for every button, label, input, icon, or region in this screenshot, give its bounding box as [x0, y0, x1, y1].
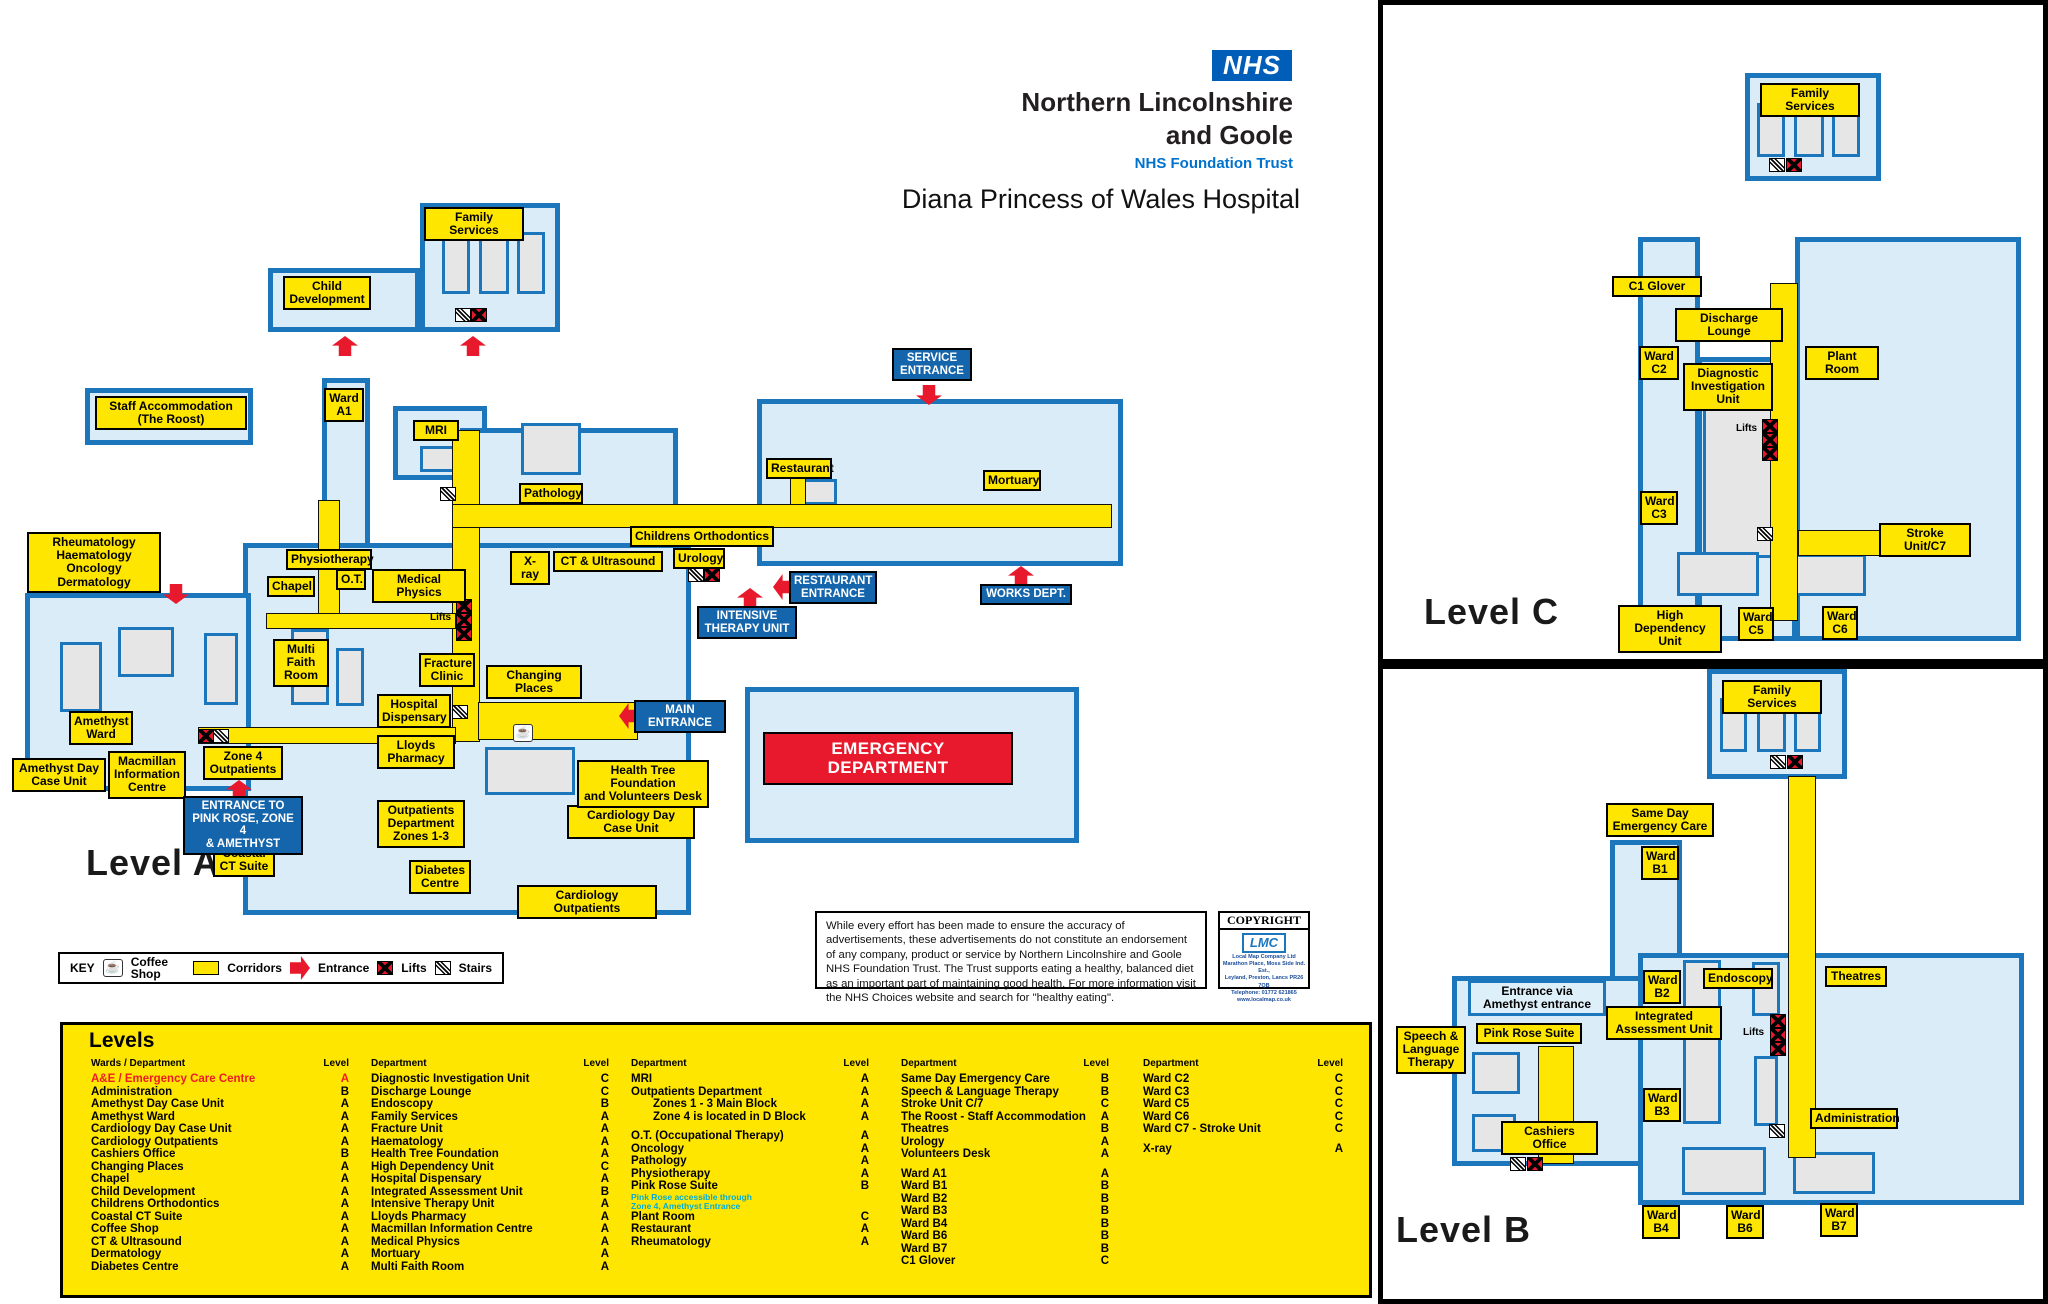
directory-row: C1 GloverC [901, 1255, 1109, 1268]
directory-row: Lloyds PharmacyA [371, 1211, 609, 1224]
map-label-level_c: Ward C6 [1822, 606, 1858, 640]
copyright-address1: Marathon Place, Moss Side Ind. Est., [1220, 961, 1308, 975]
map-label-level_a: Medical Physics [372, 569, 466, 603]
room [1793, 1152, 1875, 1194]
directory-row: CT & UltrasoundA [91, 1236, 349, 1249]
directory-column: A&E / Emergency Care CentreAAdministrati… [91, 1073, 349, 1273]
directory-row: Ward C7 - Stroke UnitC [1143, 1123, 1343, 1136]
lift-icon [1787, 755, 1803, 769]
map-label-level_a: Childrens Orthodontics [630, 526, 774, 547]
lift-icon [1770, 1014, 1786, 1028]
map-label-level_c: Diagnostic Investigation Unit [1683, 363, 1773, 411]
directory-row: Fracture UnitA [371, 1123, 609, 1136]
map-label-level_b: Endoscopy [1703, 968, 1773, 989]
directory-row: X-rayA [1143, 1143, 1343, 1156]
directory-column-header: DepartmentLevel [901, 1059, 1109, 1069]
nhs-logo: NHS [1212, 50, 1292, 81]
map-label-level_a: MAIN ENTRANCE [634, 700, 726, 733]
map-label-level_b: Family Services [1722, 680, 1822, 714]
key-entrance-label: Entrance [318, 962, 369, 974]
lift-icon [704, 568, 720, 582]
stairs-icon [1769, 1124, 1785, 1138]
hospital-name: Diana Princess of Wales Hospital [890, 185, 1300, 215]
directory-row: PathologyA [631, 1155, 869, 1168]
map-label-level_b: Lifts [1743, 1027, 1764, 1038]
map-label-level_a: Chapel [267, 576, 315, 597]
directory-column-header: Wards / DepartmentLevel [91, 1059, 349, 1069]
entrance-arrow-icon [1008, 566, 1034, 586]
stairs-icon [452, 705, 468, 719]
directory-row: Multi Faith RoomA [371, 1261, 609, 1274]
directory-row: Intensive Therapy UnitA [371, 1198, 609, 1211]
lmc-logo: LMC [1242, 933, 1286, 953]
map-label-level_a: Pathology [519, 483, 583, 504]
map-label-level_b: Ward B7 [1820, 1203, 1858, 1237]
level-b-title: Level B [1396, 1212, 1531, 1248]
map-label-level_b: Ward B3 [1643, 1088, 1681, 1122]
stairs-icon [1769, 158, 1785, 172]
directory-row: Ward B2B [901, 1193, 1109, 1206]
map-label-level_c: Family Services [1760, 83, 1860, 117]
directory-column-header: DepartmentLevel [1143, 1059, 1343, 1069]
directory-row: Family ServicesA [371, 1111, 609, 1124]
map-label-level_c: Ward C5 [1738, 607, 1774, 641]
stairs-icon [435, 961, 451, 975]
map-label-level_a: Staff Accommodation (The Roost) [95, 396, 247, 430]
corridor [1788, 776, 1816, 1158]
map-label-level_a: Restaurant [766, 458, 832, 479]
directory-row: ChapelA [91, 1173, 349, 1186]
copyright-website: www.localmap.co.uk [1220, 997, 1308, 1004]
map-label-level_b: Speech & Language Therapy [1396, 1026, 1466, 1074]
map-label-level_a: SERVICE ENTRANCE [892, 348, 972, 381]
room [60, 642, 102, 712]
directory-row: MRIA [631, 1073, 869, 1086]
directory-row: Ward C5C [1143, 1098, 1343, 1111]
corridor [790, 477, 806, 505]
map-label-level_c: C1 Glover [1612, 276, 1702, 297]
map-label-level_a: Ward A1 [324, 388, 364, 422]
room [1472, 1052, 1520, 1094]
map-label-level_a: Cardiology Day Case Unit [567, 805, 695, 839]
directory-column: Ward C2CWard C3CWard C5CWard C6CWard C7 … [1143, 1073, 1343, 1155]
directory-row: Ward C6C [1143, 1111, 1343, 1124]
coffee-shop-icon: ☕ [513, 724, 533, 742]
directory-row: Speech & Language TherapyB [901, 1086, 1109, 1099]
directory-row: High Dependency UnitC [371, 1161, 609, 1174]
map-label-level_a: CT & Ultrasound [553, 551, 663, 572]
lift-icon [377, 961, 393, 975]
directory-row: Ward B7B [901, 1243, 1109, 1256]
copyright-box: COPYRIGHT LMC Local Map Company Ltd Mara… [1218, 911, 1310, 989]
directory-row: Ward B4B [901, 1218, 1109, 1231]
directory-column-header: DepartmentLevel [631, 1059, 869, 1069]
map-label-level_c: Plant Room [1805, 346, 1879, 380]
directory-row: Stroke Unit C/7C [901, 1098, 1109, 1111]
directory-row: Hospital DispensaryA [371, 1173, 609, 1186]
trust-subtitle: NHS Foundation Trust [950, 156, 1293, 171]
hospital-map-page: NHS Northern Lincolnshire and Goole NHS … [0, 0, 2048, 1304]
map-label-level_a: WORKS DEPT. [980, 584, 1072, 605]
directory-row [631, 1123, 869, 1130]
room [118, 627, 174, 677]
map-label-level_b: Cashiers Office [1501, 1121, 1598, 1155]
directory-column: Same Day Emergency CareBSpeech & Languag… [901, 1073, 1109, 1268]
directory-column-header: DepartmentLevel [371, 1059, 609, 1069]
map-label-level_a: Amethyst Day Case Unit [12, 758, 106, 792]
map-label-level_a: Multi Faith Room [273, 639, 329, 687]
directory-row: Zones 1 - 3 Main BlockA [631, 1098, 869, 1111]
stairs-icon [1770, 755, 1786, 769]
directory-row: Ward B3B [901, 1205, 1109, 1218]
key-title: KEY [70, 962, 95, 974]
directory-row: Pink Rose SuiteB [631, 1180, 869, 1193]
map-label-level_a: Zone 4 Outpatients [203, 746, 283, 780]
map-label-level_a: INTENSIVE THERAPY UNIT [697, 606, 797, 639]
directory-row: Pink Rose accessible through Zone 4, Ame… [631, 1193, 869, 1211]
trust-name-line1: Northern Lincolnshire [1021, 87, 1293, 117]
map-label-level_a: Lloyds Pharmacy [377, 735, 455, 769]
stairs-icon [1757, 527, 1773, 541]
directory-row: MortuaryA [371, 1248, 609, 1261]
directory-row: Plant RoomC [631, 1211, 869, 1224]
directory-row: HaematologyA [371, 1136, 609, 1149]
map-label-level_a: Hospital Dispensary [377, 694, 451, 728]
map-label-level_a: Changing Places [486, 665, 582, 699]
directory-row: Coffee ShopA [91, 1223, 349, 1236]
map-label-level_a: MRI [413, 420, 459, 441]
directory-row: Ward C3C [1143, 1086, 1343, 1099]
entrance-arrow-icon [332, 336, 358, 356]
map-label-level_a: Macmillan Information Centre [108, 751, 186, 799]
directory-row: O.T. (Occupational Therapy)A [631, 1130, 869, 1143]
directory-row: Volunteers DeskA [901, 1148, 1109, 1161]
trust-name: Northern Lincolnshire and Goole [950, 86, 1293, 151]
room [1682, 1147, 1766, 1195]
directory-row: Zone 4 is located in D BlockA [631, 1111, 869, 1124]
copyright-address2: Leyland, Preston, Lancs PR26 7QB [1220, 975, 1308, 989]
directory-row: Ward C2C [1143, 1073, 1343, 1086]
room [1788, 554, 1866, 596]
copyright-company: Local Map Company Ltd [1220, 954, 1308, 961]
map-label-level_b: Same Day Emergency Care [1606, 803, 1714, 837]
map-label-level_c: Lifts [1736, 423, 1757, 434]
lift-icon [198, 729, 214, 743]
map-label-level_b: Entrance via Amethyst entrance [1468, 980, 1606, 1016]
key-stairs-label: Stairs [459, 962, 492, 974]
entrance-arrow-icon [290, 956, 310, 980]
lift-icon [1762, 447, 1778, 461]
map-label-level_a: RESTAURANT ENTRANCE [789, 571, 877, 604]
directory-row [901, 1161, 1109, 1168]
directory-row: OncologyA [631, 1143, 869, 1156]
lift-icon [1770, 1042, 1786, 1056]
lift-icon [1762, 433, 1778, 447]
map-label-level_a: Fracture Clinic [419, 653, 475, 687]
directory-row: Discharge LoungeC [371, 1086, 609, 1099]
map-label-level_c: Ward C2 [1639, 346, 1679, 380]
map-label-level_c: Stroke Unit/C7 [1879, 523, 1971, 557]
directory-row: RheumatologyA [631, 1236, 869, 1249]
directory-row: PhysiotherapyA [631, 1168, 869, 1181]
map-label-level_a: Physiotherapy [286, 549, 372, 570]
map-label-level_a: Health Tree Foundation and Volunteers De… [577, 760, 709, 808]
map-label-level_b: Ward B4 [1642, 1205, 1680, 1239]
map-label-level_a: Cardiology Outpatients [517, 885, 657, 919]
directory-row: Macmillan Information CentreA [371, 1223, 609, 1236]
map-label-level_a: Diabetes Centre [409, 860, 471, 894]
map-label-level_a: X-ray [510, 551, 550, 585]
map-key: KEY ☕ Coffee Shop Corridors Entrance Lif… [58, 952, 504, 984]
level-c-title: Level C [1424, 594, 1559, 630]
map-label-level_b: Pink Rose Suite [1476, 1023, 1582, 1044]
directory-row: Cardiology Day Case UnitA [91, 1123, 349, 1136]
map-label-level_a: O.T. [336, 569, 366, 590]
map-label-level_a: Amethyst Ward [69, 711, 133, 745]
lift-icon [1527, 1157, 1543, 1171]
map-label-level_c: Discharge Lounge [1675, 308, 1783, 342]
lift-icon [456, 627, 472, 641]
entrance-arrow-icon [737, 588, 763, 608]
key-corridors-label: Corridors [227, 962, 282, 974]
room [521, 423, 581, 475]
map-label-level_b: Ward B2 [1643, 970, 1681, 1004]
directory-row: Childrens OrthodonticsA [91, 1198, 349, 1211]
directory-row: Diabetes CentreA [91, 1261, 349, 1274]
directory-row: Ward A1A [901, 1168, 1109, 1181]
lift-icon [471, 308, 487, 322]
corridor [478, 702, 638, 740]
directory-row: Child DevelopmentA [91, 1186, 349, 1199]
map-label-level_a: Outpatients Department Zones 1-3 [377, 800, 465, 848]
map-label-level_b: Ward B1 [1641, 846, 1679, 880]
directory-row: Ward B6B [901, 1230, 1109, 1243]
levels-directory: Levels Wards / DepartmentLevelA&E / Emer… [60, 1022, 1372, 1298]
map-label-level_c: High Dependency Unit [1618, 605, 1722, 653]
map-label-level_b: Theatres [1825, 966, 1887, 987]
directory-row: Cardiology OutpatientsA [91, 1136, 349, 1149]
map-label-level_c: Ward C3 [1640, 491, 1678, 525]
map-label-level_a: Urology [673, 548, 725, 569]
lift-icon [456, 613, 472, 627]
copyright-phone: Telephone: 01772 621865 [1220, 990, 1308, 997]
corridor [266, 613, 456, 629]
directory-row: Same Day Emergency CareB [901, 1073, 1109, 1086]
corridor [452, 504, 1112, 528]
stairs-icon [688, 568, 704, 582]
directory-row: UrologyA [901, 1136, 1109, 1149]
coffee-shop-icon: ☕ [103, 959, 123, 977]
stairs-icon [213, 729, 229, 743]
stairs-icon [440, 487, 456, 501]
stairs-icon [455, 308, 471, 322]
directory-row: DermatologyA [91, 1248, 349, 1261]
directory-row: Ward B1B [901, 1180, 1109, 1193]
directory-row: EndoscopyB [371, 1098, 609, 1111]
lift-icon [1770, 1028, 1786, 1042]
directory-row: Diagnostic Investigation UnitC [371, 1073, 609, 1086]
directory-column: Diagnostic Investigation UnitCDischarge … [371, 1073, 609, 1273]
entrance-arrow-icon [460, 336, 486, 356]
directory-row: Amethyst Day Case UnitA [91, 1098, 349, 1111]
trust-name-line2: and Goole [1166, 120, 1293, 150]
room [336, 648, 364, 706]
directory-row: The Roost - Staff AccommodationA [901, 1111, 1109, 1124]
levels-directory-title: Levels [89, 1030, 154, 1051]
map-label-level_a: Mortuary [983, 470, 1041, 491]
directory-row: Outpatients DepartmentA [631, 1086, 869, 1099]
key-coffee-label: Coffee Shop [131, 956, 186, 980]
corridor-swatch [193, 961, 219, 975]
directory-row: TheatresB [901, 1123, 1109, 1136]
directory-row: Coastal CT SuiteA [91, 1211, 349, 1224]
map-label-level_a: Rheumatology Haematology Oncology Dermat… [27, 532, 161, 593]
map-label-level_b: Administration [1810, 1108, 1898, 1129]
room [485, 747, 575, 795]
map-label-level_b: Ward B6 [1726, 1205, 1764, 1239]
map-label-level_a: Family Services [424, 207, 524, 241]
directory-row: AdministrationB [91, 1086, 349, 1099]
directory-row: Amethyst WardA [91, 1111, 349, 1124]
directory-row: Changing PlacesA [91, 1161, 349, 1174]
directory-row: RestaurantA [631, 1223, 869, 1236]
key-lifts-label: Lifts [401, 962, 426, 974]
map-label-level_a: EMERGENCY DEPARTMENT [763, 732, 1013, 785]
directory-row: Cashiers OfficeB [91, 1148, 349, 1161]
directory-row [1143, 1136, 1343, 1143]
directory-row: A&E / Emergency Care CentreA [91, 1073, 349, 1086]
map-label-level_a: Child Development [283, 276, 371, 310]
lift-icon [1762, 419, 1778, 433]
directory-row: Medical PhysicsA [371, 1236, 609, 1249]
room [1677, 552, 1759, 596]
map-label-level_a: Lifts [430, 612, 451, 623]
directory-row: Integrated Assessment UnitB [371, 1186, 609, 1199]
directory-column: MRIAOutpatients DepartmentAZones 1 - 3 M… [631, 1073, 869, 1248]
map-label-level_b: Integrated Assessment Unit [1606, 1006, 1722, 1040]
room [1754, 1056, 1778, 1126]
lift-icon [1786, 158, 1802, 172]
room [204, 633, 238, 705]
copyright-title: COPYRIGHT [1220, 913, 1308, 930]
advertisement-disclaimer: While every effort has been made to ensu… [815, 911, 1207, 989]
stairs-icon [1510, 1157, 1526, 1171]
map-label-level_a: ENTRANCE TO PINK ROSE, ZONE 4 & AMETHYST [183, 796, 303, 855]
directory-row: Health Tree FoundationA [371, 1148, 609, 1161]
